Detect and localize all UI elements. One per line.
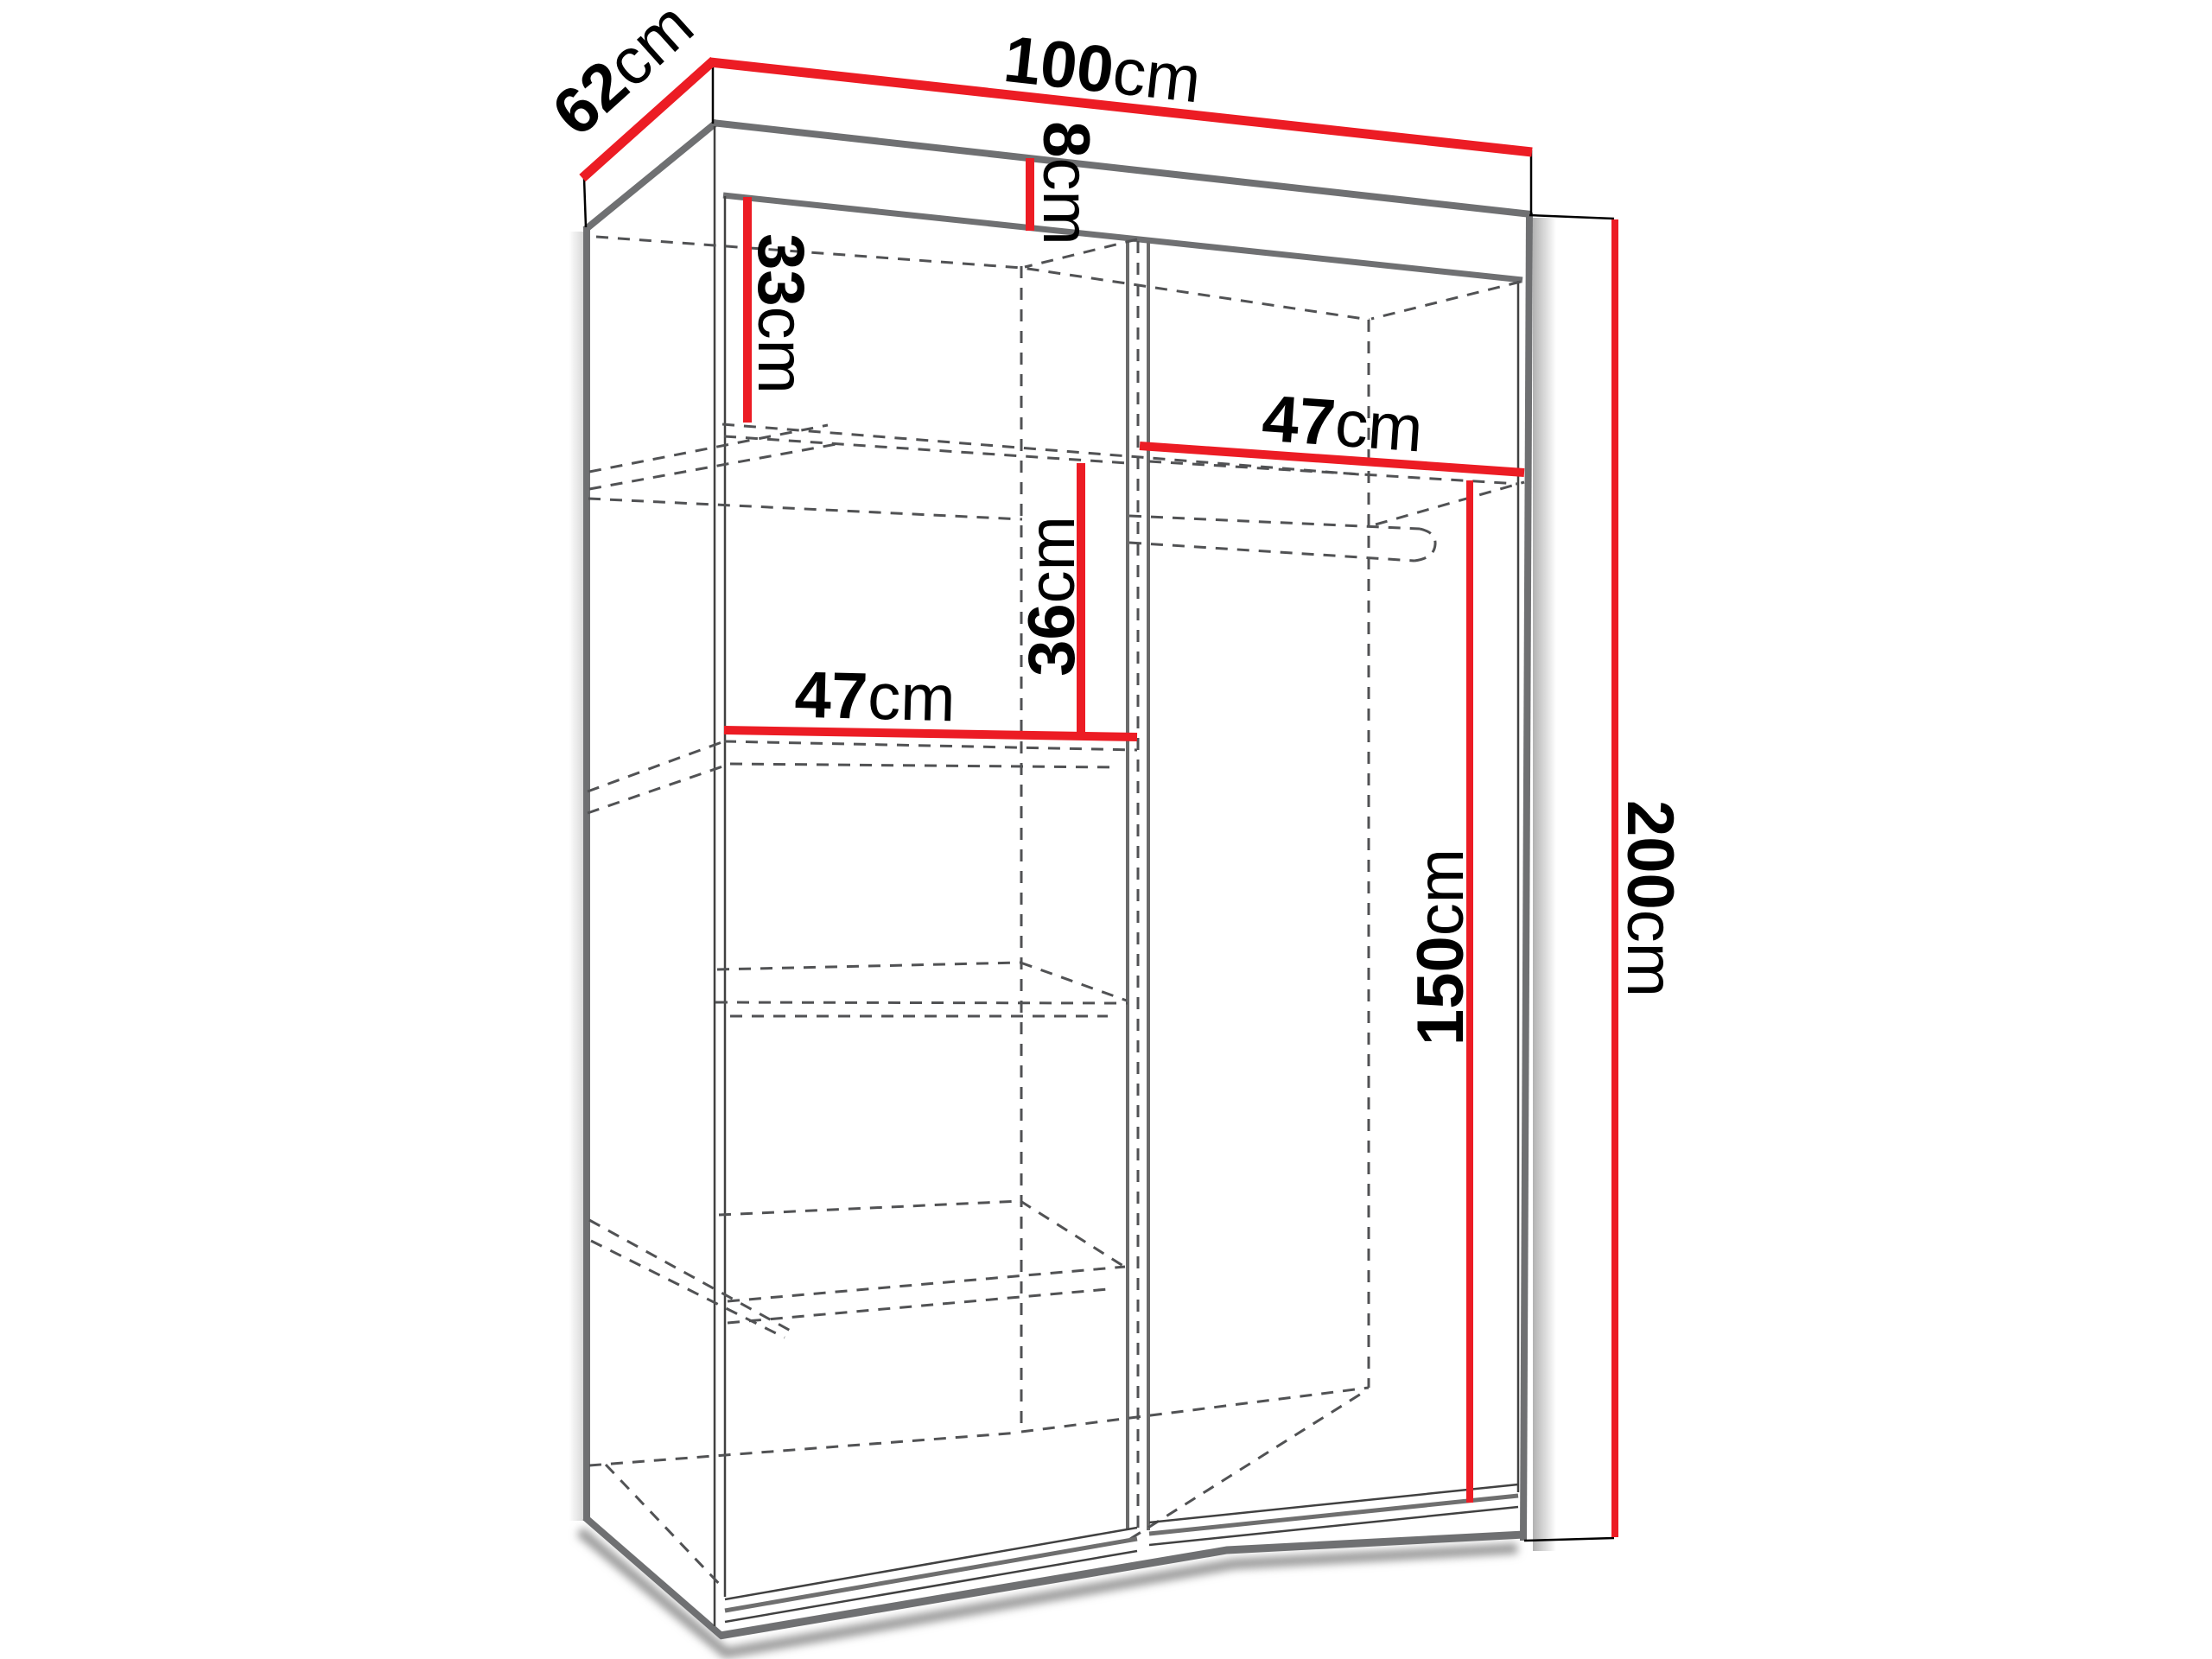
svg-text:47cm: 47cm <box>794 658 957 736</box>
svg-text:150cm: 150cm <box>1404 849 1478 1046</box>
svg-text:36cm: 36cm <box>1015 516 1089 677</box>
svg-text:8cm: 8cm <box>1029 121 1103 245</box>
svg-text:62cm: 62cm <box>538 0 707 150</box>
svg-text:200cm: 200cm <box>1613 800 1687 997</box>
svg-text:33cm: 33cm <box>744 233 817 394</box>
svg-text:47cm: 47cm <box>1260 382 1425 467</box>
svg-text:100cm: 100cm <box>1001 22 1205 118</box>
